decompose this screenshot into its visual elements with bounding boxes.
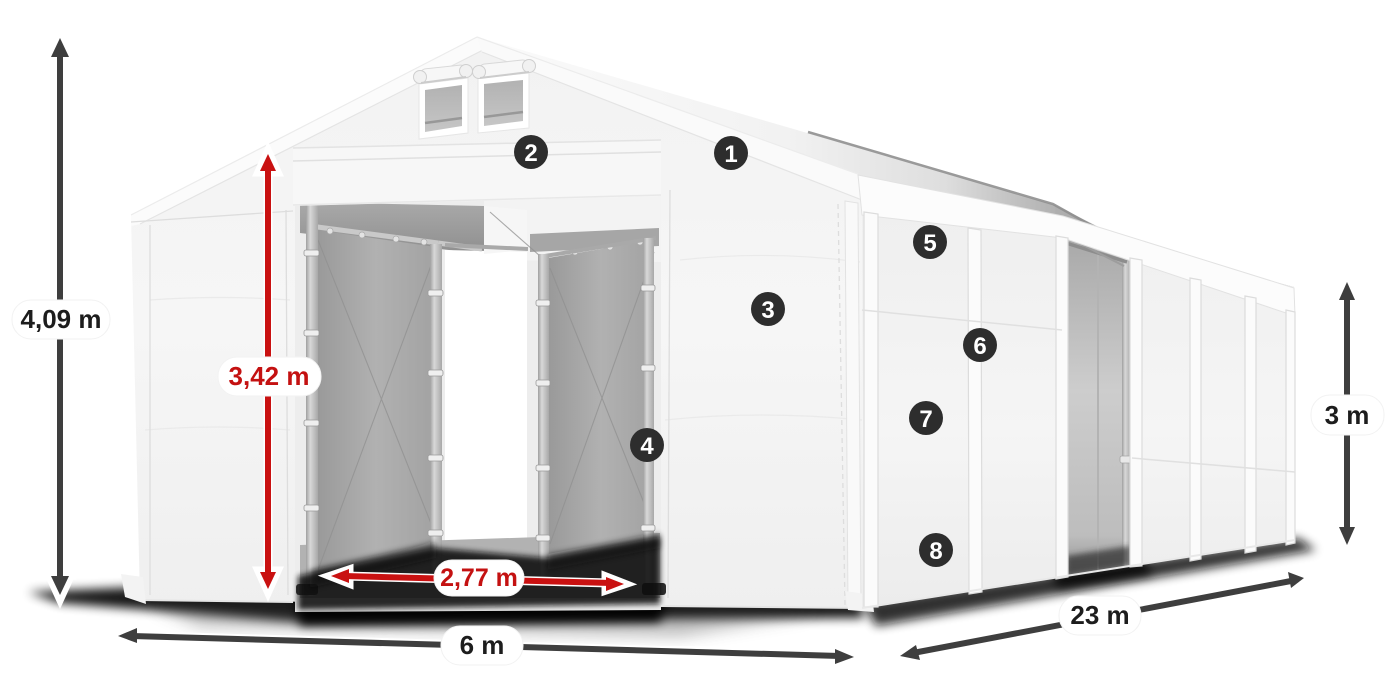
svg-text:1: 1: [724, 141, 737, 168]
svg-text:3: 3: [761, 297, 774, 324]
svg-text:6 m: 6 m: [460, 630, 505, 660]
svg-text:23 m: 23 m: [1070, 600, 1129, 630]
svg-text:8: 8: [929, 538, 942, 565]
svg-text:6: 6: [973, 333, 986, 360]
svg-text:4,09 m: 4,09 m: [21, 304, 102, 334]
svg-text:4: 4: [640, 433, 654, 460]
svg-text:2: 2: [524, 140, 537, 167]
svg-text:2,77 m: 2,77 m: [440, 564, 518, 592]
svg-text:3,42 m: 3,42 m: [229, 361, 310, 391]
svg-text:7: 7: [919, 406, 932, 433]
svg-text:5: 5: [923, 230, 936, 257]
svg-text:3 m: 3 m: [1325, 400, 1370, 430]
